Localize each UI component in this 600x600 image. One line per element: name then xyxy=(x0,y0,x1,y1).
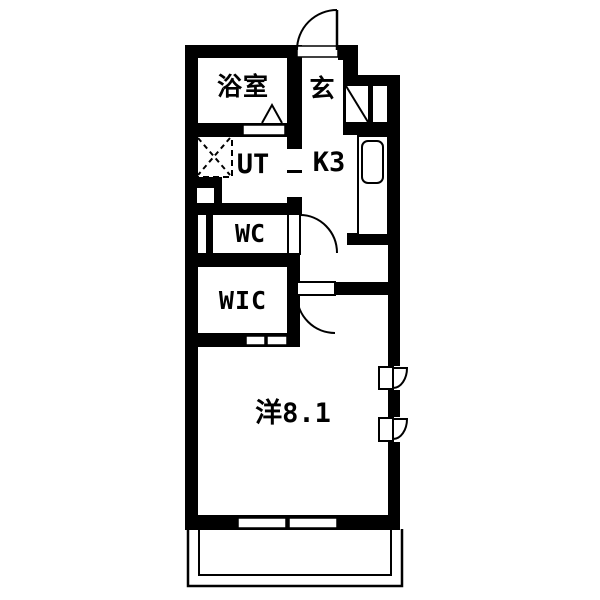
wall-ut-bottom xyxy=(185,203,300,215)
wall-hall-main xyxy=(335,282,400,295)
room-label-utility: UT xyxy=(220,151,286,178)
bathroom-folding-door xyxy=(262,105,282,123)
casement-window-swing xyxy=(393,419,407,439)
wall-right-between-windows xyxy=(388,389,400,418)
wall-top-left xyxy=(185,45,297,58)
entrance-door-arc xyxy=(297,10,337,50)
wic-sliding-door-panel xyxy=(267,336,287,345)
main-room-door xyxy=(297,282,335,333)
pipe-space-square xyxy=(197,188,214,203)
room-label-kitchen: K3 xyxy=(300,149,358,176)
balcony-outer-line xyxy=(188,529,402,586)
casement-window-upper xyxy=(379,366,407,390)
room-label-main-room: 洋8.1 xyxy=(198,400,388,427)
sliding-window-panel xyxy=(289,518,337,528)
room-label-bathroom: 浴室 xyxy=(197,74,289,99)
main-room-door-leaf xyxy=(297,282,335,295)
wc-door-leaf xyxy=(288,214,300,254)
wc-door xyxy=(288,214,337,254)
wc-door-arc xyxy=(300,215,337,253)
balcony-inner-line xyxy=(199,529,391,575)
wic-sliding-door-panel xyxy=(246,336,265,345)
entrance-opening xyxy=(297,46,338,57)
ut-sliding-door-panel xyxy=(287,173,302,197)
floorplan-canvas: 浴室 玄 UT K3 WC WIC 洋8.1 xyxy=(0,0,600,600)
casement-window-box xyxy=(379,367,393,389)
wall-right-outer-upper xyxy=(388,75,400,367)
wc-side-slot xyxy=(198,216,206,253)
sliding-window-panel xyxy=(238,518,286,528)
wall-top-stub xyxy=(338,45,358,60)
entrance-door xyxy=(297,10,337,50)
main-room-door-arc xyxy=(297,295,335,333)
kitchen-counter xyxy=(358,136,388,235)
room-label-toilet: WC xyxy=(213,221,287,246)
kitchen-sink xyxy=(362,141,383,183)
pipe-space-slot xyxy=(373,86,387,122)
wall-wc-left xyxy=(206,215,213,253)
room-label-entrance: 玄 xyxy=(300,76,344,101)
casement-window-swing xyxy=(393,368,407,388)
room-label-closet: WIC xyxy=(199,288,287,313)
wall-wc-bottom xyxy=(185,253,300,267)
wall-left-outer xyxy=(185,45,198,530)
bathroom-door-opening xyxy=(243,125,285,135)
balcony xyxy=(188,529,402,586)
